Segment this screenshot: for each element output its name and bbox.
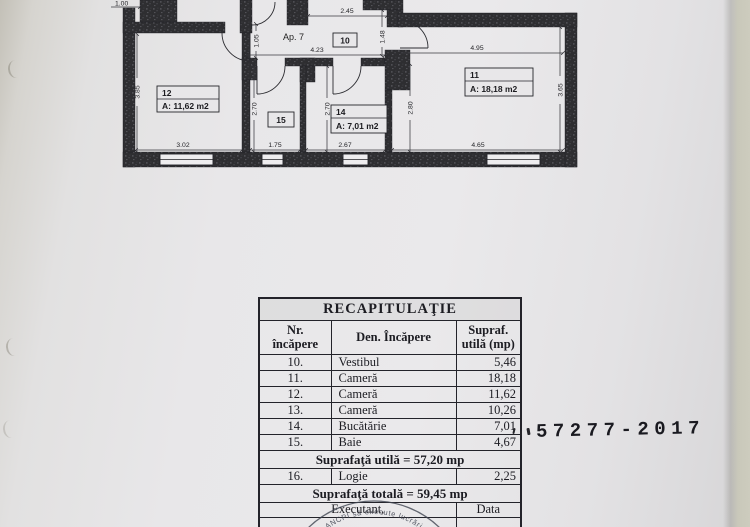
wall-12-15 — [242, 33, 250, 152]
room11-area: A: 18,18 m2 — [470, 84, 518, 94]
door-arc-top — [252, 2, 275, 25]
cell-area: 7,01 — [456, 419, 521, 435]
table-row: 14. Bucătărie 7,01 — [259, 419, 521, 435]
wall-15-14 — [300, 66, 306, 152]
ink-mark — [520, 431, 522, 436]
cell-nr: 12. — [259, 387, 331, 403]
punch-emboss-mark — [5, 337, 23, 357]
cell-name: Logie — [331, 469, 456, 485]
table-row: 13. Cameră 10,26 — [259, 403, 521, 419]
dim-entry-height: 1.48 — [380, 30, 387, 43]
cell-nr: 15. — [259, 435, 331, 451]
cell-area: 2,25 — [456, 469, 521, 485]
subtotal-row: Suprafaţă utilă = 57,20 mp — [259, 451, 521, 469]
col-header-nr: Nr. încăpere — [259, 321, 331, 355]
wall-top-right-seg — [363, 0, 403, 10]
room11-number: 11 — [470, 70, 479, 80]
registration-number: 57277-2017 — [536, 417, 705, 443]
table-row-logie: 16. Logie 2,25 — [259, 469, 521, 485]
dim-room15-height: 2.70 — [252, 102, 259, 115]
cell-nr: 16. — [259, 469, 331, 485]
dim-hall-width: 4.23 — [310, 47, 323, 54]
wall-room11-top — [398, 13, 577, 27]
round-stamp: de ANCPI să execute lucrări de — [268, 491, 480, 527]
col-header-area: Supraf. utilă (mp) — [456, 321, 521, 355]
wall-entry-stub — [287, 0, 308, 25]
pier-14-11 — [385, 50, 410, 90]
scan-page-edge — [723, 0, 750, 527]
cell-name: Bucătărie — [331, 419, 456, 435]
punch-emboss-mark — [7, 59, 25, 79]
cell-area: 10,26 — [456, 403, 521, 419]
dim-hall-height: 1.05 — [254, 34, 261, 47]
table-row: 11. Cameră 18,18 — [259, 371, 521, 387]
apartment-label: Ap. 7 — [283, 32, 304, 42]
col-header-name: Den. Încăpere — [331, 321, 456, 355]
wall-stub-topleft — [140, 0, 177, 22]
cell-name: Cameră — [331, 403, 456, 419]
wall-hall-seg1 — [285, 58, 333, 66]
subtotal-label: Suprafaţă utilă = 57,20 mp — [259, 451, 521, 469]
table-row: 15. Baie 4,67 — [259, 435, 521, 451]
dim-room12-width: 3.02 — [176, 142, 189, 149]
cell-nr: 11. — [259, 371, 331, 387]
dim-room11-top: 4.95 — [470, 45, 483, 52]
dim-room14-height: 2.70 — [325, 102, 332, 115]
svg-text:de ANCPI să execute lucrări de: de ANCPI să execute lucrări de — [313, 507, 435, 527]
room14-number: 14 — [336, 107, 346, 117]
dim-room11-height: 3.65 — [558, 83, 565, 96]
room12-number: 12 — [162, 88, 172, 98]
scanned-document-page: 1.00 2.45 4.23 4.95 3.02 1.75 2.67 4.65 … — [0, 0, 750, 527]
stamp-text: de ANCPI să execute lucrări de — [313, 507, 435, 527]
cell-name: Vestibul — [331, 355, 456, 371]
cell-area: 11,62 — [456, 387, 521, 403]
dim-room14-right-height: 2.80 — [408, 101, 415, 114]
room10-number: 10 — [340, 36, 350, 46]
wall-right — [565, 13, 577, 167]
table-header-row: Nr. încăpere Den. Încăpere Supraf. utilă… — [259, 321, 521, 355]
table-row: 12. Cameră 11,62 — [259, 387, 521, 403]
dim-top-left: 1.00 — [115, 1, 128, 8]
room15-number: 15 — [276, 115, 286, 125]
dim-room11-width: 4.65 — [471, 142, 484, 149]
punch-emboss-mark — [2, 419, 20, 439]
dim-entry-width: 2.45 — [340, 8, 353, 15]
table-row: 10. Vestibul 5,46 — [259, 355, 521, 371]
door-arc-room14 — [333, 66, 361, 94]
wall-stub-center — [240, 0, 252, 33]
cell-nr: 10. — [259, 355, 331, 371]
floor-plan: 1.00 2.45 4.23 4.95 3.02 1.75 2.67 4.65 … — [110, 0, 585, 172]
cell-nr: 14. — [259, 419, 331, 435]
cell-name: Cameră — [331, 387, 456, 403]
cell-area: 5,46 — [456, 355, 521, 371]
table-title-row: RECAPITULAŢIE — [259, 298, 521, 321]
dim-room14-width: 2.67 — [338, 142, 351, 149]
table-title: RECAPITULAŢIE — [259, 298, 521, 321]
cell-name: Cameră — [331, 371, 456, 387]
door-arc-room15 — [257, 66, 285, 94]
wall-room12-top — [123, 22, 225, 33]
dim-room12-height: 3.85 — [135, 85, 142, 98]
room14-area: A: 7,01 m2 — [336, 121, 379, 131]
wall-hall-seg2 — [361, 58, 385, 66]
cell-area: 18,18 — [456, 371, 521, 387]
cell-area: 4,67 — [456, 435, 521, 451]
room12-area: A: 11,62 m2 — [162, 101, 209, 111]
cell-nr: 13. — [259, 403, 331, 419]
cell-name: Baie — [331, 435, 456, 451]
ink-mark — [526, 428, 530, 435]
dim-room15-width: 1.75 — [268, 142, 281, 149]
